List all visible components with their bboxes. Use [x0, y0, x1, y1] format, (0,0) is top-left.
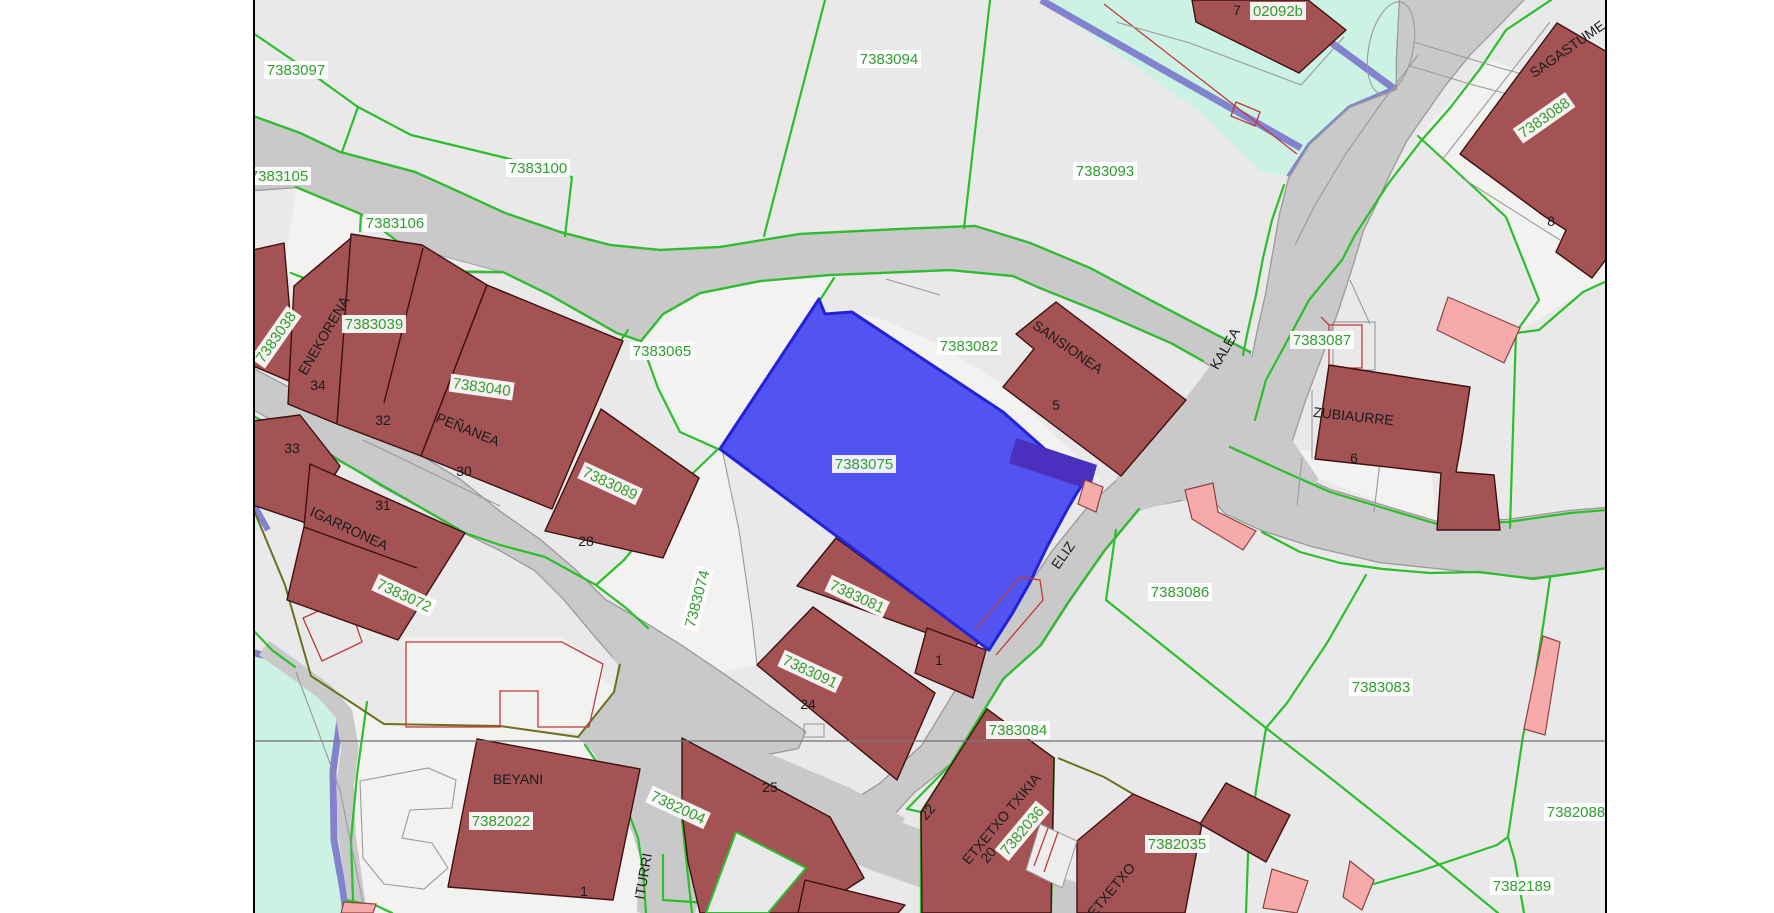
svg-text:30: 30	[456, 463, 472, 479]
svg-text:7382189: 7382189	[1493, 878, 1551, 895]
svg-text:7383097: 7383097	[267, 62, 325, 79]
svg-text:6: 6	[1350, 450, 1358, 466]
svg-text:7383086: 7383086	[1151, 584, 1209, 601]
svg-text:31: 31	[375, 497, 391, 513]
svg-text:7383093: 7383093	[1076, 163, 1134, 180]
svg-text:7383083: 7383083	[1352, 679, 1410, 696]
svg-text:7383094: 7383094	[860, 51, 918, 68]
svg-text:7383082: 7383082	[940, 338, 998, 355]
svg-text:BEYANI: BEYANI	[493, 771, 543, 787]
svg-text:24: 24	[800, 696, 816, 712]
svg-text:7383105: 7383105	[250, 168, 308, 185]
svg-text:7383106: 7383106	[366, 215, 424, 232]
svg-text:02092b: 02092b	[1253, 3, 1303, 20]
svg-text:7383100: 7383100	[509, 160, 567, 177]
svg-text:5: 5	[1052, 397, 1060, 413]
svg-text:7: 7	[1233, 2, 1241, 18]
svg-text:28: 28	[578, 533, 594, 549]
svg-text:7383039: 7383039	[345, 316, 403, 333]
svg-text:7383084: 7383084	[989, 722, 1047, 739]
svg-text:7382022: 7382022	[472, 813, 530, 830]
svg-text:32: 32	[375, 412, 391, 428]
svg-text:7383065: 7383065	[633, 343, 691, 360]
svg-text:1: 1	[580, 883, 588, 899]
svg-text:34: 34	[310, 377, 326, 393]
svg-text:7383075: 7383075	[835, 456, 893, 473]
svg-text:33: 33	[284, 440, 300, 456]
svg-text:8: 8	[1547, 213, 1555, 229]
svg-text:7383087: 7383087	[1293, 332, 1351, 349]
svg-text:7382088: 7382088	[1547, 804, 1605, 821]
svg-text:25: 25	[762, 779, 778, 795]
svg-text:1: 1	[935, 652, 943, 668]
svg-text:7382035: 7382035	[1148, 836, 1206, 853]
